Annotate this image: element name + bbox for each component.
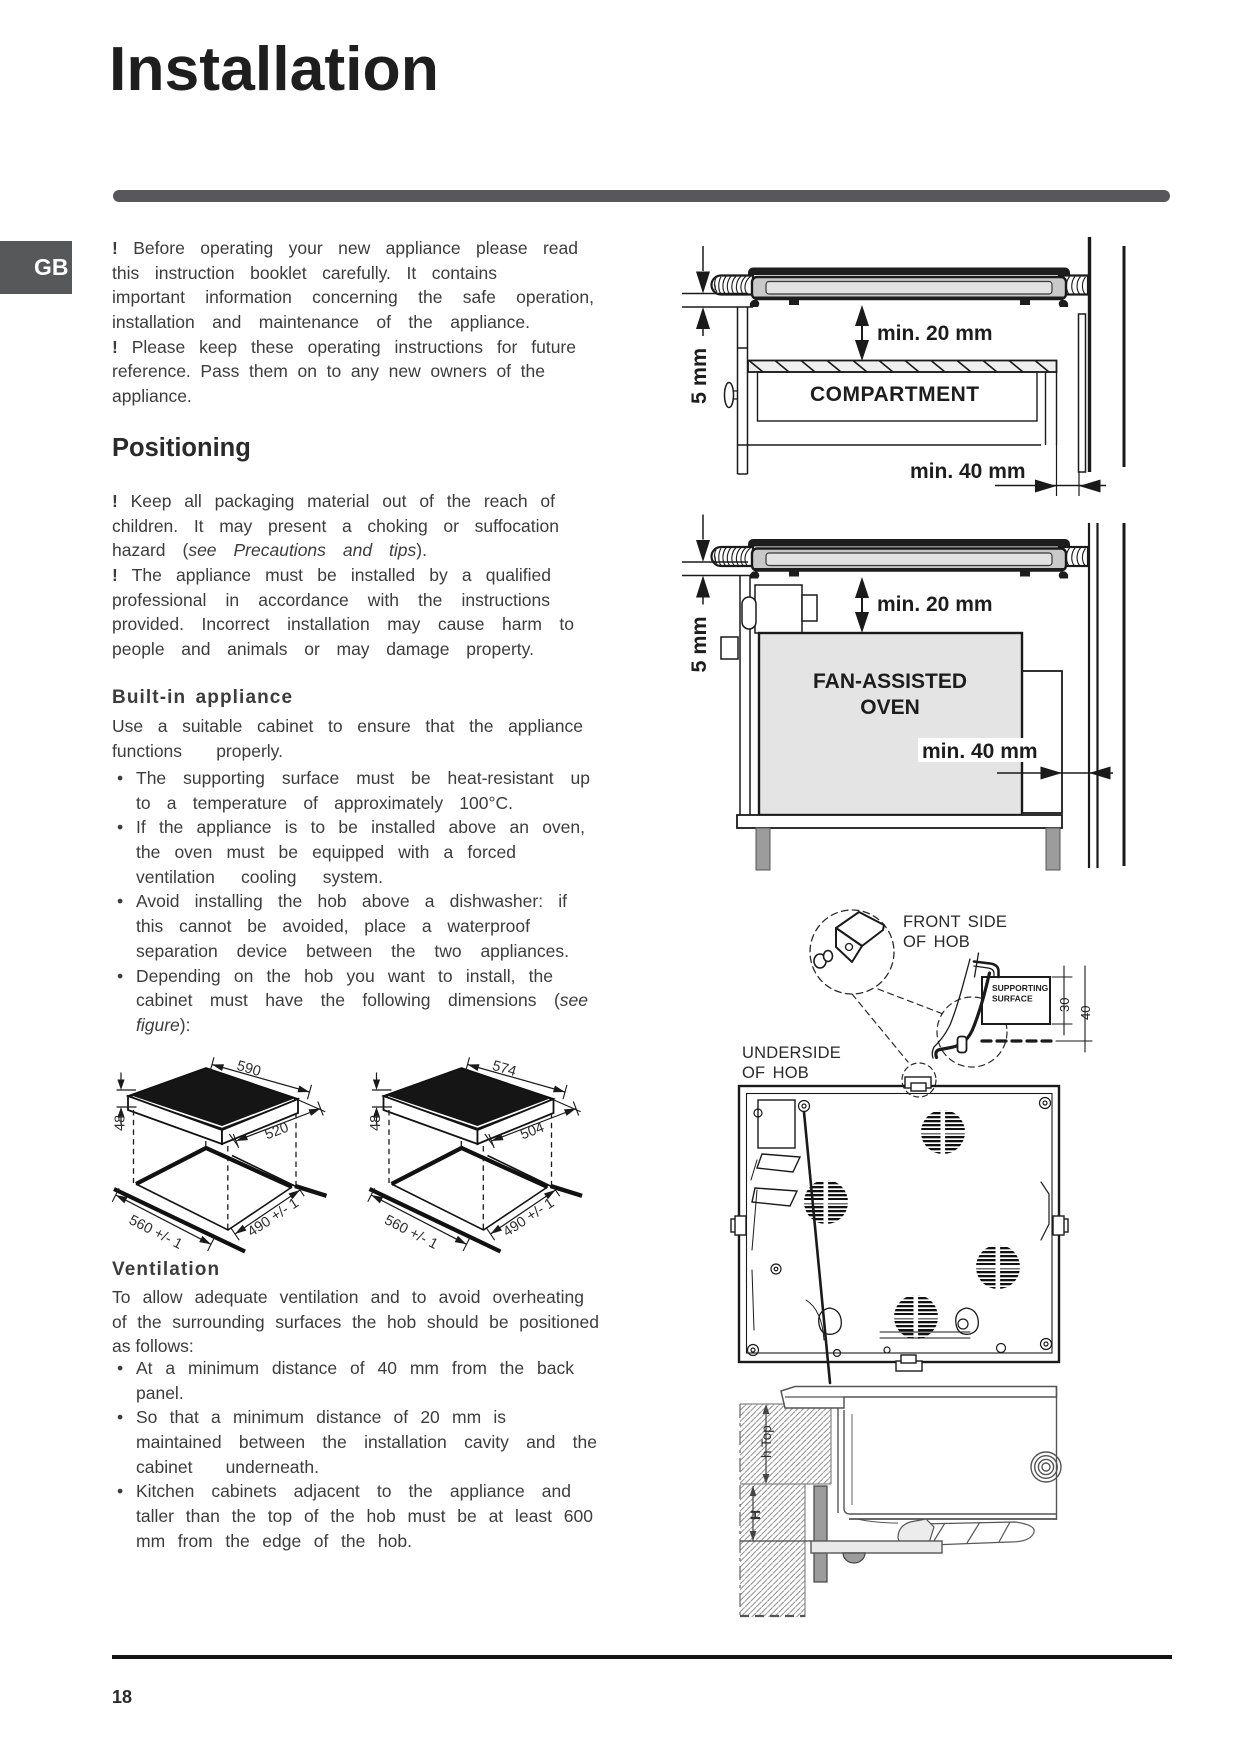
- svg-text:FAN-ASSISTED: FAN-ASSISTED: [813, 670, 967, 693]
- svg-text:h Top: h Top: [759, 1425, 774, 1458]
- svg-text:490 +/- 1: 490 +/- 1: [500, 1195, 557, 1240]
- svg-text:490 +/- 1: 490 +/- 1: [245, 1195, 302, 1240]
- svg-text:UNDERSIDE: UNDERSIDE: [742, 1044, 841, 1062]
- svg-text:H: H: [747, 1510, 763, 1520]
- svg-text:OVEN: OVEN: [860, 696, 920, 719]
- svg-text:48: 48: [113, 1115, 129, 1131]
- svg-text:590: 590: [235, 1058, 263, 1080]
- svg-text:40: 40: [1078, 1006, 1093, 1020]
- svg-text:min. 20 mm: min. 20 mm: [877, 593, 993, 616]
- svg-text:min. 20 mm: min. 20 mm: [877, 322, 993, 345]
- svg-text:OF HOB: OF HOB: [903, 933, 970, 951]
- svg-text:SURFACE: SURFACE: [992, 994, 1033, 1004]
- svg-text:48: 48: [368, 1115, 384, 1131]
- svg-text:SUPPORTING: SUPPORTING: [992, 983, 1049, 993]
- svg-text:574: 574: [490, 1058, 518, 1080]
- svg-text:30: 30: [1057, 998, 1072, 1012]
- svg-text:min. 40 mm: min. 40 mm: [910, 460, 1026, 483]
- svg-text:OF HOB: OF HOB: [742, 1064, 809, 1082]
- svg-text:min. 40 mm: min. 40 mm: [922, 740, 1038, 763]
- svg-text:COMPARTMENT: COMPARTMENT: [810, 383, 980, 406]
- svg-text:FRONT SIDE: FRONT SIDE: [903, 913, 1007, 931]
